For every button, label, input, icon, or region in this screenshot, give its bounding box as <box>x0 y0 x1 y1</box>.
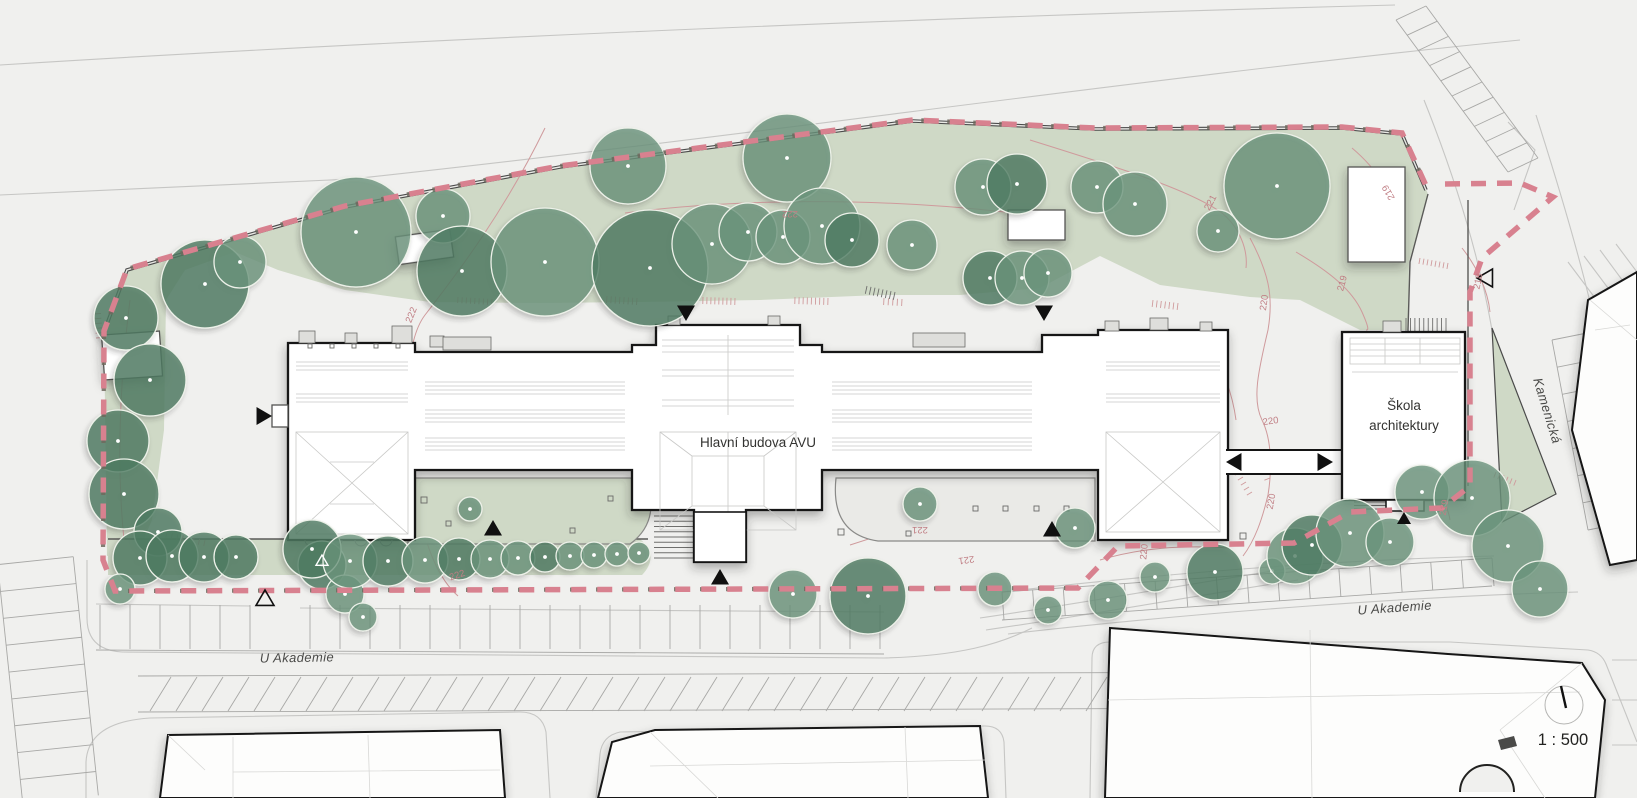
school-label-line2: architektury <box>1369 418 1439 433</box>
street-label-u-akademie-left: U Akademie <box>260 649 335 665</box>
school-label-line1: Škola <box>1387 398 1421 413</box>
contour-elevation-label: 221 <box>958 553 975 566</box>
terrace-left <box>408 478 651 544</box>
site-plan-page: Hlavní budova AVU Škola architektury U A… <box>0 0 1637 798</box>
site-plan: Hlavní budova AVU Škola architektury U A… <box>0 0 1637 798</box>
contour-elevation-label: 221 <box>912 524 928 535</box>
contour-elevation-label: 220 <box>1258 294 1271 311</box>
main-building-label: Hlavní budova AVU <box>700 435 816 450</box>
contour-elevation-label: 220 <box>1138 543 1150 560</box>
contour-elevation-label: 220 <box>1262 415 1279 428</box>
scale-label: 1 : 500 <box>1538 731 1588 749</box>
contour-elevation-label: 222 <box>782 208 798 219</box>
building-bottom-middle <box>598 726 988 798</box>
lawn-structure-right <box>1348 167 1405 262</box>
building-bottom-left <box>160 730 505 798</box>
